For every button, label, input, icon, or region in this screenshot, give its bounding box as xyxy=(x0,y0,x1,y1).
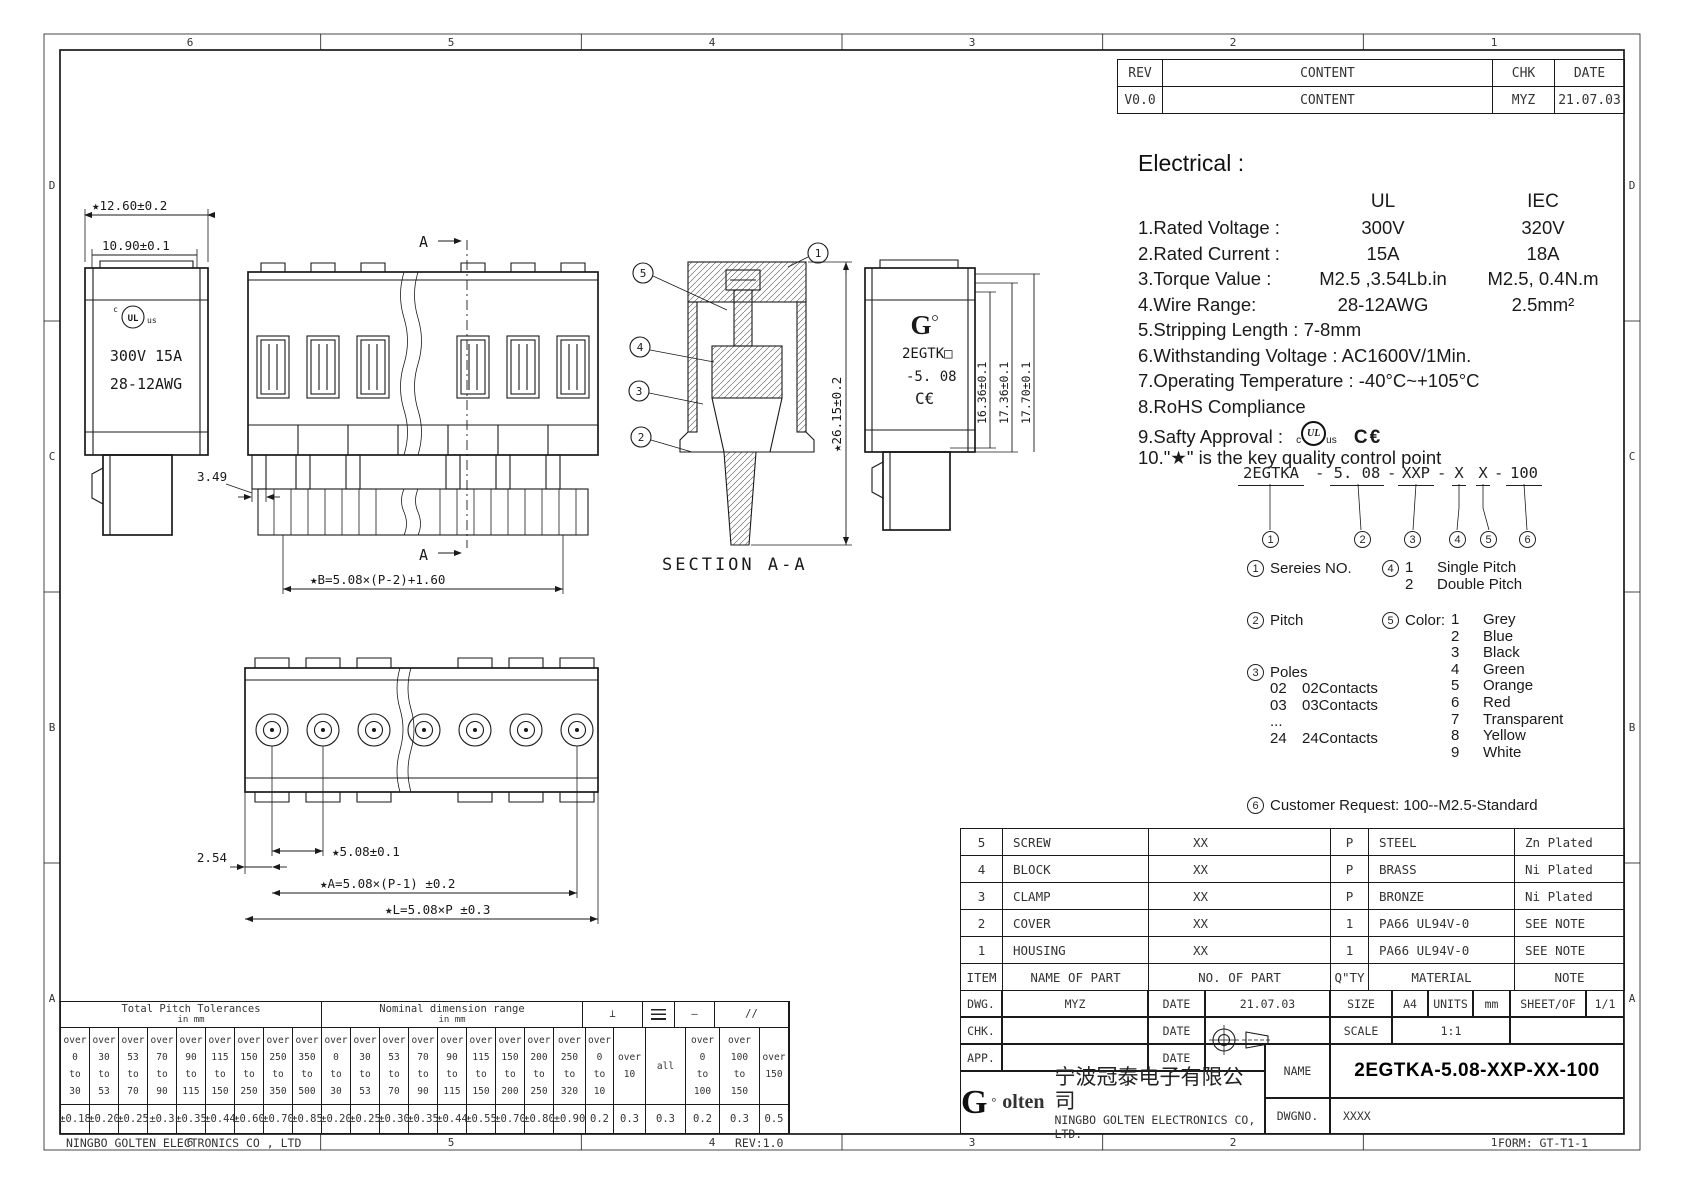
code-customer: 100 xyxy=(1506,464,1542,486)
tolerance-value: ±0.20 xyxy=(90,1105,119,1133)
tolerance-range: over 250 to 350 xyxy=(264,1028,293,1105)
tolerance-range: over 30 to 53 xyxy=(351,1028,380,1105)
part-name: SCREW xyxy=(1003,829,1149,856)
sheet-count: 1/1 xyxy=(1586,990,1624,1017)
company-name-en: NINGBO GOLTEN ELECTRONICS CO, LTD. xyxy=(1054,1113,1264,1141)
zone-label: C xyxy=(42,450,62,463)
marker-4: 4 xyxy=(1449,531,1466,548)
part-note: Zn Plated xyxy=(1515,829,1625,856)
tolerance-range: over 200 to 250 xyxy=(525,1028,554,1105)
title-block: DWG. MYZ DATE 21.07.03 SIZE A4 UNITS mm … xyxy=(960,990,1624,1134)
code-pitch: 5. 08 xyxy=(1330,464,1384,486)
zone-label: 5 xyxy=(441,36,461,49)
dim-label: 2.54 xyxy=(197,850,227,865)
electrical-line: 7.Operating Temperature : -40°C~+105°C xyxy=(1138,370,1638,396)
zone-label: D xyxy=(42,179,62,192)
tolerance-range: over 150 to 200 xyxy=(496,1028,525,1105)
part-note: Ni Plated xyxy=(1515,856,1625,883)
tolerance-value: 0.5 xyxy=(760,1105,789,1133)
part-note: SEE NOTE xyxy=(1515,937,1625,964)
marker-3: 3 xyxy=(1404,531,1421,548)
straightness-icon: — xyxy=(675,1002,715,1028)
part-material: PA66 UL94V-0 xyxy=(1369,910,1515,937)
footer-company: NINGBO GOLTEN ELECTRONICS CO , LTD xyxy=(66,1136,301,1150)
electrical-row: 4.Wire Range: 28-12AWG 2.5mm² xyxy=(1138,294,1638,320)
part-no: XX xyxy=(1149,829,1331,856)
tolerance-value: ±0.80 xyxy=(525,1105,554,1133)
footer-form: FORM: GT-T1-1 xyxy=(1498,1136,1588,1150)
dim-label: 17.36±0.1 xyxy=(997,362,1011,424)
rating-text: 28-12AWG xyxy=(110,375,182,393)
section-view: 1 5 4 3 2 SECTION A-A ★26.15±0.2 xyxy=(629,243,852,575)
part-number: 2EGTKA-5.08-XXP-XX-100 xyxy=(1354,1060,1599,1082)
electrical-specs: Electrical : UL IEC 1.Rated Voltage : 30… xyxy=(1138,150,1638,472)
part-name: BLOCK xyxy=(1003,856,1149,883)
tolerance-value: 0.3 xyxy=(720,1105,760,1133)
tolerance-value-row: ±0.18±0.20±0.25±0.3±0.35±0.44±0.60±0.70±… xyxy=(61,1105,789,1133)
code-color: X xyxy=(1476,464,1490,486)
side-view-left: ★12.60±0.2 10.90±0.1 UL c us 300V 15A 28… xyxy=(85,198,280,535)
part-item: 3 xyxy=(961,883,1003,910)
tolerance-range: over 150 to 250 xyxy=(235,1028,264,1105)
part-qty: 1 xyxy=(1331,937,1369,964)
svg-text:3: 3 xyxy=(636,385,643,398)
golten-g-logo: G xyxy=(910,310,931,340)
svg-text:1: 1 xyxy=(815,247,822,260)
rev-value: V0.0 xyxy=(1118,87,1163,114)
tolerance-range: over 100 to 150 xyxy=(720,1028,760,1105)
drawn-by: MYZ xyxy=(1002,990,1148,1017)
section-marker: A xyxy=(419,233,428,251)
units-value: mm xyxy=(1473,990,1510,1017)
tolerance-range: over 70 to 90 xyxy=(148,1028,177,1105)
tolerance-value: ±0.18 xyxy=(61,1105,90,1133)
svg-text:UL: UL xyxy=(128,314,139,324)
svg-text:2: 2 xyxy=(638,431,645,444)
sheet-size: A4 xyxy=(1392,990,1428,1017)
zone-label: 1 xyxy=(1484,36,1504,49)
section-title: SECTION A-A xyxy=(662,555,808,575)
front-view: A A ★B=5.08×(P-2)+1.60 xyxy=(248,233,598,594)
scale-value: 1:1 xyxy=(1392,1017,1510,1044)
dim-label: ★26.15±0.2 xyxy=(829,377,844,452)
ul-mark: cULus xyxy=(1296,421,1337,446)
part-name: COVER xyxy=(1003,910,1149,937)
electrical-row: 3.Torque Value : M2.5 ,3.54Lb.in M2.5, 0… xyxy=(1138,268,1638,294)
zone-label: 3 xyxy=(962,36,982,49)
electrical-row: 1.Rated Voltage : 300V 320V xyxy=(1138,217,1638,243)
tolerance-value: 0.2 xyxy=(686,1105,720,1133)
legend-pitch: 2Pitch xyxy=(1247,612,1303,629)
tolerance-value: ±0.70 xyxy=(496,1105,525,1133)
zone-label: B xyxy=(1622,721,1642,734)
electrical-line: 6.Withstanding Voltage : AC1600V/1Min. xyxy=(1138,345,1638,371)
part-material: BRASS xyxy=(1369,856,1515,883)
zone-label: 5 xyxy=(441,1136,461,1149)
svg-text:4: 4 xyxy=(637,341,644,354)
parts-table-header: ITEM NAME OF PART NO. OF PART Q"TY MATER… xyxy=(960,963,1625,991)
svg-text:c: c xyxy=(113,305,118,314)
marker-6: 6 xyxy=(1519,531,1536,548)
dim-label: 16.36±0.1 xyxy=(975,362,989,424)
callout-4: 4 xyxy=(630,337,714,362)
company-name-cn: 宁波冠泰电子有限公司 xyxy=(1054,1065,1264,1113)
zone-label: 2 xyxy=(1223,36,1243,49)
part-material: BRONZE xyxy=(1369,883,1515,910)
part-item: 1 xyxy=(961,937,1003,964)
tolerance-value: ±0.85 xyxy=(293,1105,322,1133)
tolerance-value: ±0.35 xyxy=(177,1105,206,1133)
rev-chk: MYZ xyxy=(1493,87,1555,114)
tolerance-range: over 250 to 320 xyxy=(554,1028,586,1105)
zone-label: B xyxy=(42,721,62,734)
tolerance-value: ±0.44 xyxy=(438,1105,467,1133)
projection-symbol xyxy=(1206,1020,1272,1060)
tolerance-range: over 0 to 100 xyxy=(686,1028,720,1105)
part-qty: P xyxy=(1331,856,1369,883)
drawing-number: XXXX xyxy=(1330,1098,1624,1134)
symmetry-cell xyxy=(643,1002,675,1028)
code-pitch-type: X xyxy=(1452,464,1466,486)
zone-label: 4 xyxy=(702,36,722,49)
part-no: XX xyxy=(1149,883,1331,910)
nominal-range-header: Nominal dimension rangein mm xyxy=(322,1002,583,1028)
part-item: 4 xyxy=(961,856,1003,883)
drawing-sheet: ★12.60±0.2 10.90±0.1 UL c us 300V 15A 28… xyxy=(0,0,1684,1190)
side-view-right: G 2EGTK□ -5. 08 C€ 16.36±0.1 17.36±0.1 1… xyxy=(865,260,1040,530)
content-col-header: CONTENT xyxy=(1163,60,1493,87)
tolerance-value: ±0.20 xyxy=(322,1105,351,1133)
part-qty: P xyxy=(1331,829,1369,856)
rev-content: CONTENT xyxy=(1163,87,1493,114)
parts-table: 5 SCREW XX P STEEL Zn Plated 4 BLOCK XX … xyxy=(960,828,1625,964)
dim-label: ★5.08±0.1 xyxy=(332,844,400,859)
dim-label: 3.49 xyxy=(197,469,227,484)
tolerance-range: over 115 to 150 xyxy=(206,1028,235,1105)
contact-holes xyxy=(256,714,593,746)
part-qty: 1 xyxy=(1331,910,1369,937)
ul-column-header: UL xyxy=(1288,191,1478,213)
ce-mark: C€ xyxy=(1354,427,1382,448)
part-name: CLAMP xyxy=(1003,883,1149,910)
section-marker: A xyxy=(419,546,428,564)
zone-label: A xyxy=(42,992,62,1005)
dim-label: ★12.60±0.2 xyxy=(92,198,167,213)
legend-customer-request: 6Customer Request: 100--M2.5-Standard xyxy=(1247,797,1538,814)
tolerance-range: over 30 to 53 xyxy=(90,1028,119,1105)
rating-text: 300V 15A xyxy=(110,347,182,365)
legend-color: 5Color: 1Grey2Blue3Black4Green5Orange6Re… xyxy=(1382,612,1563,761)
tolerance-range: over 53 to 70 xyxy=(119,1028,148,1105)
company-block: G°olten 宁波冠泰电子有限公司 NINGBO GOLTEN ELECTRO… xyxy=(961,1065,1264,1141)
tolerance-value: ±0.25 xyxy=(351,1105,380,1133)
tolerance-value: ±0.90 xyxy=(554,1105,586,1133)
ce-mark: C€ xyxy=(915,389,934,408)
part-item: 5 xyxy=(961,829,1003,856)
svg-text:us: us xyxy=(147,316,157,325)
tolerance-value: ±0.25 xyxy=(119,1105,148,1133)
svg-text:5: 5 xyxy=(640,267,647,280)
legend-poles: 3 Poles 0202Contacts0303Contacts...2424C… xyxy=(1247,664,1378,747)
golten-logo: G°olten xyxy=(961,1088,1044,1118)
dim-label: ★B=5.08×(P-2)+1.60 xyxy=(310,572,445,587)
dim-label: ★L=5.08×P ±0.3 xyxy=(385,902,490,917)
code-series: 2EGTKA xyxy=(1238,464,1304,486)
parallelism-icon: // xyxy=(715,1002,789,1028)
electrical-rows: 1.Rated Voltage : 300V 320V 2.Rated Curr… xyxy=(1138,217,1638,319)
model-text: -5. 08 xyxy=(906,369,957,385)
dim-label: 10.90±0.1 xyxy=(102,238,170,253)
marker-1: 1 xyxy=(1262,531,1279,548)
dim-label: ★A=5.08×(P-1) ±0.2 xyxy=(320,876,455,891)
part-item: 2 xyxy=(961,910,1003,937)
tolerance-value: ±0.3 xyxy=(148,1105,177,1133)
part-material: STEEL xyxy=(1369,829,1515,856)
zone-label: A xyxy=(1622,992,1642,1005)
part-no: XX xyxy=(1149,910,1331,937)
perpendicularity-icon: ⊥ xyxy=(583,1002,643,1028)
date-col-header: DATE xyxy=(1555,60,1625,87)
bottom-view: ★5.08±0.1 2.54 ★A=5.08×(P-1) ±0.2 ★L=5.0… xyxy=(197,658,598,924)
tolerance-range-row: over 0 to 30over 30 to 53over 53 to 70ov… xyxy=(61,1028,789,1105)
zone-label: 4 xyxy=(702,1136,722,1149)
legend-series: 1Sereies NO. xyxy=(1247,560,1352,577)
code-poles: XXP xyxy=(1398,464,1434,486)
dim-label: 17.70±0.1 xyxy=(1019,362,1033,424)
chk-col-header: CHK xyxy=(1493,60,1555,87)
tolerance-value: ±0.30 xyxy=(380,1105,409,1133)
tolerance-value: 0.2 xyxy=(586,1105,614,1133)
electrical-title: Electrical : xyxy=(1138,150,1638,177)
iec-column-header: IEC xyxy=(1468,191,1618,213)
marker-2: 2 xyxy=(1354,531,1371,548)
tolerance-range: all xyxy=(646,1028,686,1105)
part-note: SEE NOTE xyxy=(1515,910,1625,937)
tolerance-table: Total Pitch Tolerancesin mm Nominal dime… xyxy=(60,1001,790,1134)
part-no: XX xyxy=(1149,937,1331,964)
footer-revision: REV:1.0 xyxy=(735,1136,783,1150)
tolerance-range: over 0 to 10 xyxy=(586,1028,614,1105)
tolerance-range: over 70 to 90 xyxy=(409,1028,438,1105)
ul-mark: UL c us xyxy=(113,305,157,328)
revision-table: REV CONTENT CHK DATE V0.0 CONTENT MYZ 21… xyxy=(1117,59,1625,114)
ordering-leaders xyxy=(1270,484,1527,530)
electrical-safety-line: 9.Safty Approval : cULus C€ xyxy=(1138,421,1638,447)
tolerance-value: 0.3 xyxy=(646,1105,686,1133)
symmetry-icon xyxy=(651,1009,666,1020)
tolerance-range: over 90 to 115 xyxy=(177,1028,206,1105)
rev-date: 21.07.03 xyxy=(1555,87,1625,114)
rev-col-header: REV xyxy=(1118,60,1163,87)
drawn-date: 21.07.03 xyxy=(1205,990,1330,1017)
zone-label: 6 xyxy=(180,36,200,49)
electrical-row: 2.Rated Current : 15A 18A xyxy=(1138,243,1638,269)
callout-2: 2 xyxy=(631,427,692,452)
tolerance-range: over 90 to 115 xyxy=(438,1028,467,1105)
part-no: XX xyxy=(1149,856,1331,883)
tolerance-range: over 150 xyxy=(760,1028,789,1105)
tolerance-range: over 350 to 500 xyxy=(293,1028,322,1105)
tolerance-range: over 115 to 150 xyxy=(467,1028,496,1105)
tolerance-value: ±0.44 xyxy=(206,1105,235,1133)
tolerance-range: over 0 to 30 xyxy=(322,1028,351,1105)
tolerance-value: ±0.35 xyxy=(409,1105,438,1133)
part-material: PA66 UL94V-0 xyxy=(1369,937,1515,964)
electrical-line: 8.RoHS Compliance xyxy=(1138,396,1638,422)
part-name: HOUSING xyxy=(1003,937,1149,964)
model-text: 2EGTK□ xyxy=(902,346,953,362)
tolerance-value: ±0.70 xyxy=(264,1105,293,1133)
tolerance-range: over 10 xyxy=(614,1028,646,1105)
pitch-tolerance-header: Total Pitch Tolerancesin mm xyxy=(61,1002,322,1028)
electrical-line: 5.Stripping Length : 7-8mm xyxy=(1138,319,1638,345)
tolerance-value: 0.3 xyxy=(614,1105,646,1133)
tolerance-value: ±0.55 xyxy=(467,1105,496,1133)
electrical-lines: 5.Stripping Length : 7-8mm6.Withstanding… xyxy=(1138,319,1638,421)
legend-pitch-type: 4 1Single Pitch2Double Pitch xyxy=(1382,560,1522,593)
standards-header: UL IEC xyxy=(1138,191,1638,217)
part-note: Ni Plated xyxy=(1515,883,1625,910)
part-qty: P xyxy=(1331,883,1369,910)
tolerance-value: ±0.60 xyxy=(235,1105,264,1133)
marker-5: 5 xyxy=(1480,531,1497,548)
tolerance-range: over 53 to 70 xyxy=(380,1028,409,1105)
tolerance-range: over 0 to 30 xyxy=(61,1028,90,1105)
